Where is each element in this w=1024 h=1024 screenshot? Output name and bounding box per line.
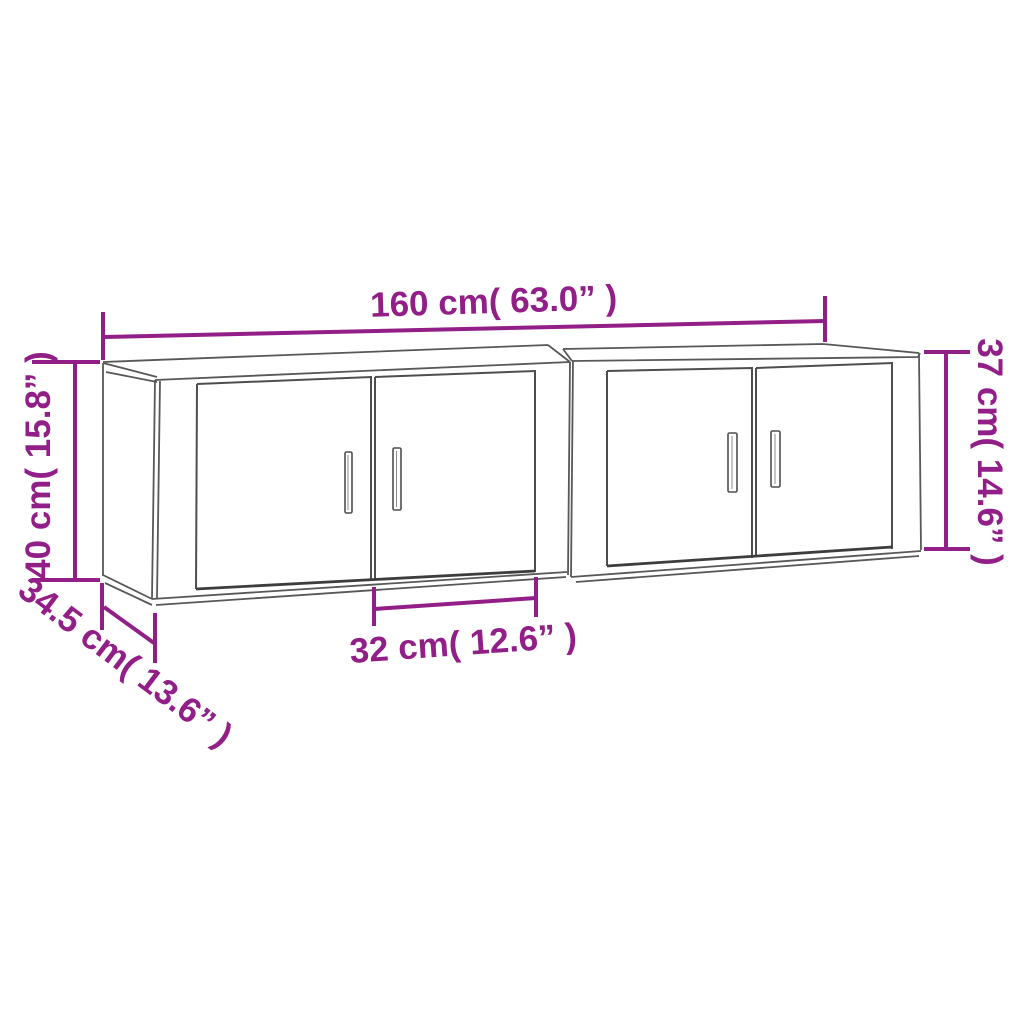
dimension-height-right-label: 37 cm( 14.6” ) [970,338,1009,566]
cabinet-dimension-diagram: 160 cm( 63.0” ) 40 cm( 15.8” ) 37 cm( 14… [0,0,1024,1024]
dimension-door-width-line [374,598,536,609]
dimension-height-left-label: 40 cm( 15.8” ) [19,351,58,579]
dimension-width-label: 160 cm( 63.0” ) [370,278,618,325]
cabinet-right [563,344,921,582]
dimension-door-width-label: 32 cm( 12.6” ) [348,616,578,671]
cabinet-left-outline [103,345,570,605]
dimension-height-right [924,352,970,549]
cabinet-right-outline [563,344,921,582]
cabinet-left [103,345,570,605]
cabinet-left-door-bottom-edge [196,571,535,589]
dimension-depth-label: 34.5 cm( 13.6” ) [11,569,240,755]
dimension-width-line [103,321,825,337]
dimension-diagram-page: 160 cm( 63.0” ) 40 cm( 15.8” ) 37 cm( 14… [0,0,1024,1024]
